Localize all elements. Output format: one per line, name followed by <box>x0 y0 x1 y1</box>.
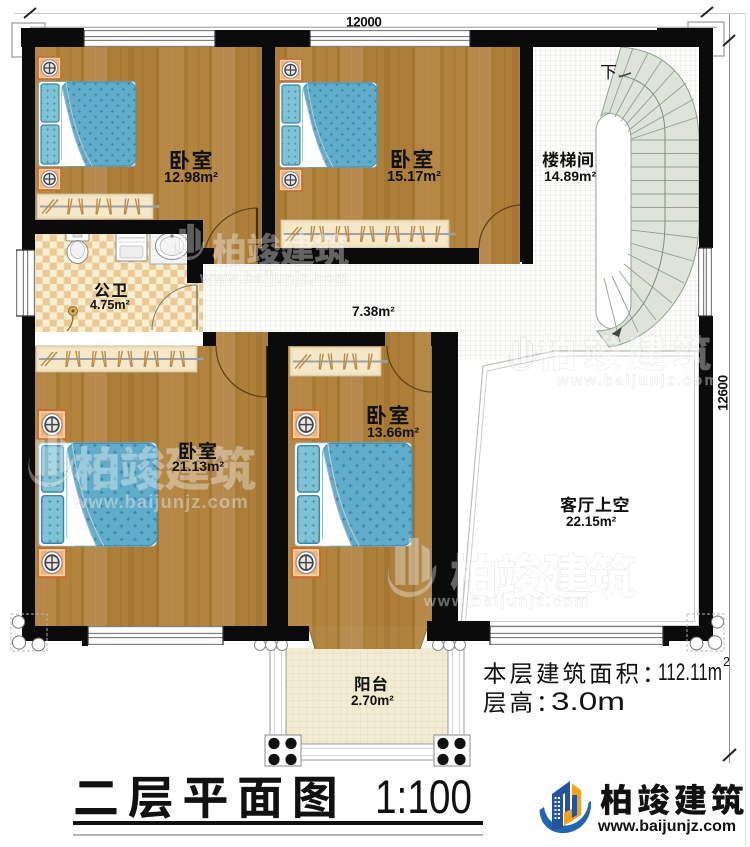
svg-text:www.baijunjz.com: www.baijunjz.com <box>199 270 350 287</box>
svg-text:12600: 12600 <box>716 375 731 411</box>
svg-text:2.70m²: 2.70m² <box>351 693 394 708</box>
svg-text:112.11m: 112.11m <box>658 659 722 686</box>
svg-text:12000: 12000 <box>346 15 382 30</box>
svg-text:www.baijunjz.com: www.baijunjz.com <box>556 373 720 389</box>
svg-text:14.89m²: 14.89m² <box>544 168 596 184</box>
svg-text:22.15m²: 22.15m² <box>566 514 617 529</box>
svg-text:7.38m²: 7.38m² <box>352 304 395 319</box>
svg-text:21.13m²: 21.13m² <box>172 458 224 474</box>
svg-text:12.98m²: 12.98m² <box>164 170 218 186</box>
svg-text:15.17m²: 15.17m² <box>387 169 441 185</box>
svg-text:3.0m: 3.0m <box>551 688 625 716</box>
svg-text:www.baijunjz.com: www.baijunjz.com <box>423 593 590 610</box>
svg-text:4.75m²: 4.75m² <box>90 298 130 312</box>
svg-text:www.baijunjz.com: www.baijunjz.com <box>597 818 736 835</box>
svg-text:www.baijunjz.com: www.baijunjz.com <box>72 491 249 512</box>
svg-text:13.66m²: 13.66m² <box>367 424 419 440</box>
svg-text:1:100: 1:100 <box>375 770 472 823</box>
svg-text:2: 2 <box>723 655 730 669</box>
